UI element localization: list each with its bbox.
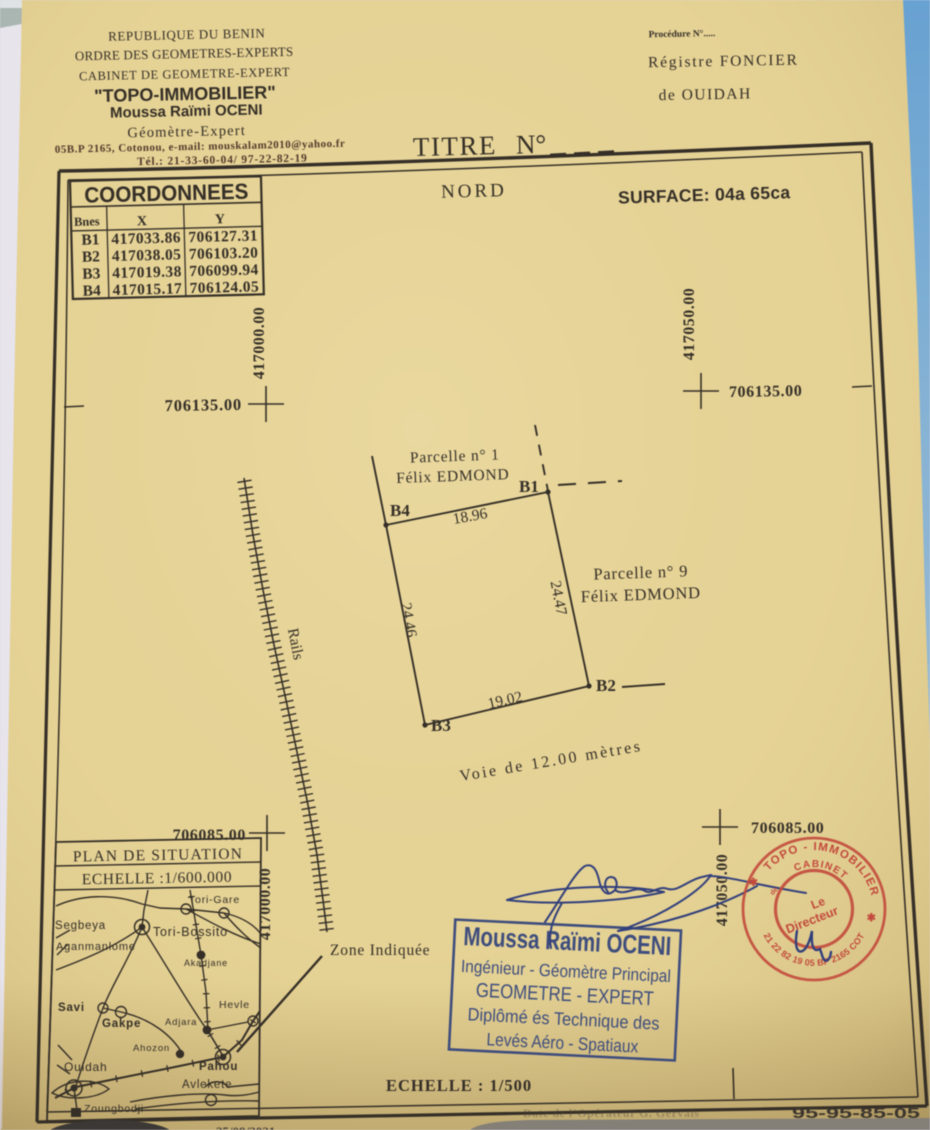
svg-text:Zone Indiquée: Zone Indiquée [330,942,430,959]
svg-text:Moussa Raïmi OCENI: Moussa Raïmi OCENI [110,101,263,121]
svg-text:B3: B3 [82,265,101,282]
svg-text:417000.00: 417000.00 [251,307,268,380]
svg-text:417033.86: 417033.86 [111,229,181,248]
svg-text:Segbeya: Segbeya [55,920,106,932]
svg-text:25/09/2021: 25/09/2021 [216,1124,275,1130]
svg-text:B1: B1 [81,231,100,248]
svg-text:B3: B3 [431,716,451,735]
svg-text:Akadjane: Akadjane [184,958,228,968]
svg-text:Zoungbodji: Zoungbodji [84,1103,144,1115]
svg-text:B4: B4 [82,282,101,299]
svg-text:COORDONNEES: COORDONNEES [84,179,249,208]
svg-text:ECHELLE :1/600.000: ECHELLE :1/600.000 [82,869,233,889]
svg-text:Parcelle n° 9: Parcelle n° 9 [593,561,688,583]
svg-text:95-95-85-05: 95-95-85-05 [792,1106,920,1122]
svg-text:NORD: NORD [441,180,507,203]
svg-text:Procédure N°.....: Procédure N°..... [648,28,715,40]
svg-text:Régistre FONCIER: Régistre FONCIER [648,52,799,72]
svg-text:de OUIDAH: de OUIDAH [658,85,751,104]
svg-text:Avlekete: Avlekete [182,1079,232,1091]
svg-text:706103.20: 706103.20 [189,244,259,263]
svg-text:Ouidah: Ouidah [64,1060,108,1074]
svg-text:B4: B4 [390,501,410,520]
svg-text:706099.94: 706099.94 [189,261,259,280]
svg-text:417038.05: 417038.05 [112,246,182,265]
svg-text:Tori-Bossito: Tori-Bossito [153,925,228,939]
svg-text:706135.00: 706135.00 [165,395,243,415]
svg-text:706135.00: 706135.00 [729,383,803,401]
svg-text:417050.00: 417050.00 [714,854,731,927]
svg-text:706124.05: 706124.05 [189,278,259,297]
svg-text:B2: B2 [82,248,101,265]
svg-text:ECHELLE : 1/500: ECHELLE : 1/500 [386,1076,532,1095]
svg-text:Adjara: Adjara [165,1017,197,1028]
svg-text:Gakpe: Gakpe [102,1018,141,1030]
svg-text:417050.00: 417050.00 [681,288,698,361]
svg-text:Parcelle n° 1: Parcelle n° 1 [410,446,500,466]
svg-text:Hevle: Hevle [219,999,250,1011]
svg-text:Géomètre-Expert: Géomètre-Expert [127,123,246,141]
svg-text:706127.31: 706127.31 [188,227,258,246]
svg-text:B2: B2 [596,676,616,695]
svg-text:Date de l’Opérateur G. Ger: Date de l’Opérateur G. Gervais [523,1106,699,1120]
svg-text:706085.00: 706085.00 [751,820,824,837]
svg-text:Bnes: Bnes [74,214,100,229]
svg-text:Y: Y [215,212,225,227]
svg-text:Pahou: Pahou [199,1061,238,1073]
svg-text:X: X [137,214,147,229]
svg-text:Savi: Savi [58,1002,85,1014]
svg-text:417015.17: 417015.17 [112,280,182,299]
svg-text:Ahozon: Ahozon [133,1043,170,1054]
svg-text:706085.00: 706085.00 [173,827,246,844]
svg-text:Aganmanlome: Aganmanlome [56,941,136,953]
svg-text:Tori-Gare: Tori-Gare [189,894,240,906]
svg-text:PLAN DE SITUATION: PLAN DE SITUATION [73,846,244,866]
svg-text:417019.38: 417019.38 [112,263,182,282]
svg-text:B1: B1 [519,477,539,496]
